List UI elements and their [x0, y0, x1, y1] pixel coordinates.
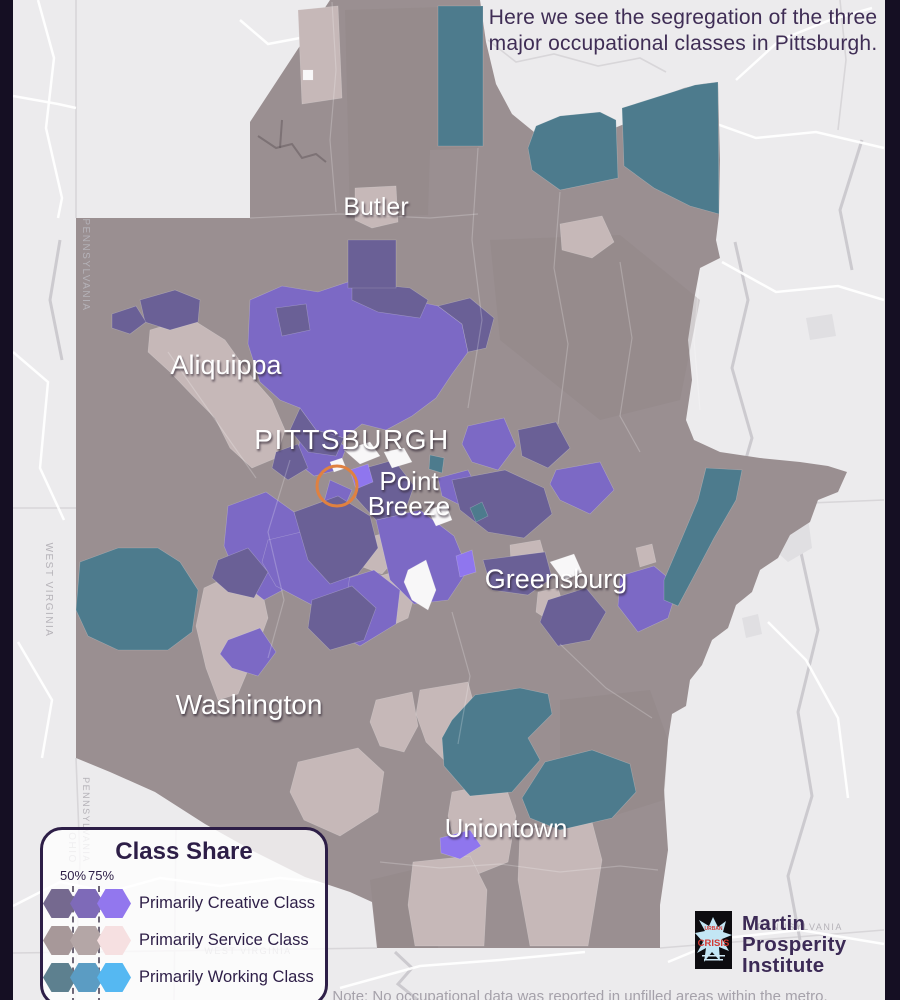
legend-row-label: Primarily Creative Class — [139, 894, 315, 913]
legend-row-label: Primarily Service Class — [139, 931, 309, 950]
hexagon-swatch-3 — [97, 963, 131, 992]
tract-region-working — [438, 6, 483, 146]
hexagon-swatch-3 — [97, 889, 131, 918]
book-cover-art: URBAN CRISIS — [695, 911, 732, 969]
pittsburgh-class-segregation-map: PENNSYLVANIAPENNSYLVANIAOHIOWEST VIRGINI… — [0, 0, 900, 1000]
state-label-west-virginia: WEST VIRGINIA — [43, 543, 54, 638]
org-line-3: Institute — [742, 955, 846, 976]
city-label-pittsburgh: PITTSBURGH — [254, 424, 449, 455]
legend-row-service: Primarily Service Class — [43, 922, 325, 959]
page-border-left — [0, 0, 13, 1000]
legend-row-creative: Primarily Creative Class — [43, 885, 325, 922]
town-area — [806, 314, 836, 340]
map-caption: Here we see the segregation of the three… — [478, 5, 888, 57]
book-top-text: URBAN — [704, 926, 722, 932]
tract-region-service-light — [408, 856, 487, 946]
caption-line-1: Here we see the segregation of the three — [478, 5, 888, 31]
book-title-text: CRISIS — [698, 938, 730, 949]
hexagon-swatch-3 — [97, 926, 131, 955]
legend-threshold-50: 50% — [60, 868, 86, 883]
tract-region-working — [76, 548, 198, 650]
tract-region-creative-dark — [348, 240, 396, 288]
legend-rows: Primarily Creative ClassPrimarily Servic… — [43, 885, 325, 996]
tract-region-no-data — [303, 70, 313, 80]
legend-panel: Class Share 50% 75% Primarily Creative C… — [40, 827, 328, 1000]
state-label-pennsylvania: PENNSYLVANIA — [80, 218, 91, 311]
legend-title: Class Share — [43, 838, 325, 866]
city-label-butler: Butler — [343, 193, 408, 221]
city-label-uniontown: Uniontown — [445, 813, 568, 843]
book-byline — [704, 959, 723, 961]
org-line-1: Martin — [742, 913, 846, 934]
legend-row-label: Primarily Working Class — [139, 968, 314, 987]
legend-row-working: Primarily Working Class — [43, 959, 325, 996]
caption-line-2: major occupational classes in Pittsburgh… — [478, 31, 888, 57]
org-line-2: Prosperity — [742, 934, 846, 955]
footnote: Note: No occupational data was reported … — [300, 988, 860, 1000]
city-label-aliquippa: Aliquippa — [170, 350, 282, 380]
mpi-logo: URBAN CRISIS Martin Prosperity Institute — [695, 911, 846, 976]
legend-threshold-75: 75% — [88, 868, 114, 883]
org-name: Martin Prosperity Institute — [742, 911, 846, 976]
city-label-washington: Washington — [176, 689, 323, 720]
tract-region-creative-dark — [276, 304, 310, 336]
city-label-breeze: Breeze — [368, 491, 450, 521]
page-border-right — [885, 0, 900, 1000]
urban-crisis-book-cover: URBAN CRISIS — [695, 911, 732, 969]
city-label-greensburg: Greensburg — [485, 564, 628, 594]
book-byline — [702, 955, 725, 957]
